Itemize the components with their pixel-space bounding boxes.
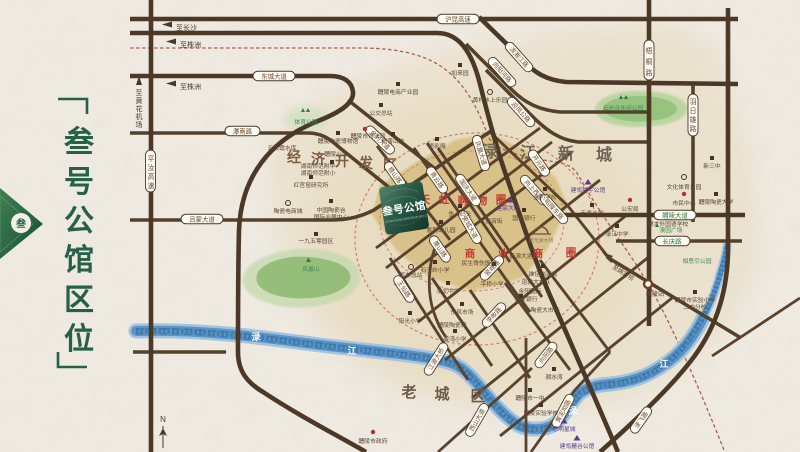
svg-text:市民中心: 市民中心	[672, 199, 695, 207]
svg-text:金利学校: 金利学校	[533, 193, 556, 201]
svg-text:醴陵陶瓷大学: 醴陵陶瓷大学	[699, 198, 734, 206]
svg-text:红官窑研究所: 红官窑研究所	[294, 181, 329, 189]
svg-text:建瓴虹宇公馆: 建瓴虹宇公馆	[571, 186, 606, 194]
svg-text:叁: 叁	[15, 217, 27, 230]
svg-text:湖南师范附小: 湖南师范附小	[301, 169, 336, 177]
svg-text:姜湾小学: 姜湾小学	[443, 335, 466, 343]
svg-text:号: 号	[64, 166, 94, 199]
svg-text:桐: 桐	[646, 57, 653, 66]
svg-text:新: 新	[558, 144, 574, 163]
svg-text:德才外国语学校: 德才外国语学校	[648, 220, 689, 228]
svg-text:江: 江	[659, 358, 668, 369]
svg-text:N: N	[160, 415, 166, 424]
svg-text:梧影庵: 梧影庵	[428, 142, 446, 150]
svg-text:金阳国际: 金阳国际	[518, 287, 541, 295]
svg-text:醴陵市司法局: 醴陵市司法局	[351, 132, 386, 140]
svg-text:吕蒙大道: 吕蒙大道	[189, 215, 215, 224]
svg-text:区: 区	[470, 388, 485, 405]
svg-text:馆: 馆	[64, 243, 94, 277]
svg-text:醴陵市实验小学: 醴陵市实验小学	[675, 296, 716, 304]
svg-text:农业银行: 农业银行	[514, 295, 537, 303]
svg-text:高: 高	[148, 172, 155, 181]
svg-text:发: 发	[358, 155, 374, 172]
svg-text:公交总站: 公交总站	[369, 109, 392, 117]
svg-text:至株洲: 至株洲	[180, 40, 201, 49]
svg-text:运输大车队: 运输大车队	[522, 278, 551, 286]
svg-text:场: 场	[136, 120, 143, 129]
svg-text:鱼人码头: 鱼人码头	[448, 210, 471, 218]
svg-text:圈: 圈	[496, 194, 507, 206]
svg-text:澳园广场: 澳园广场	[659, 226, 682, 234]
svg-text:湘水湾: 湘水湾	[545, 373, 563, 381]
svg-text:渌北中学: 渌北中学	[436, 287, 459, 295]
svg-text:建宸大院: 建宸大院	[496, 204, 519, 212]
svg-text:公安局: 公安局	[621, 205, 639, 213]
svg-text:加来园: 加来园	[451, 69, 469, 77]
svg-text:陶瓷电商城: 陶瓷电商城	[274, 207, 303, 215]
svg-text:平桥小学: 平桥小学	[480, 280, 503, 288]
svg-text:五彩霞水库: 五彩霞水库	[268, 144, 297, 152]
svg-text:石子岭小学: 石子岭小学	[421, 266, 450, 274]
svg-text:阳光小学: 阳光小学	[398, 317, 421, 325]
svg-text:雄: 雄	[690, 115, 697, 124]
svg-text:花: 花	[136, 104, 143, 113]
svg-text:民生骨伤医院: 民生骨伤医院	[462, 259, 497, 267]
svg-text:夜宵街: 夜宵街	[485, 217, 503, 225]
svg-text:湖南师范附中: 湖南师范附中	[301, 162, 336, 170]
svg-text:汝: 汝	[148, 163, 155, 172]
svg-text:瀑南路: 瀑南路	[233, 127, 253, 136]
svg-text:位: 位	[64, 322, 94, 356]
svg-text:思明星城: 思明星城	[552, 426, 575, 433]
svg-text:国际会展中心: 国际会展中心	[314, 213, 349, 221]
svg-text:新三中: 新三中	[703, 162, 721, 170]
svg-text:凤凰山: 凤凰山	[302, 265, 320, 273]
svg-text:城: 城	[434, 385, 449, 403]
svg-text:醴陵电商产业园: 醴陵电商产业园	[378, 88, 419, 96]
svg-text:黄村水上乐园: 黄村水上乐园	[473, 96, 508, 104]
svg-text:至长沙: 至长沙	[176, 23, 197, 32]
svg-text:檀香山庄: 檀香山庄	[381, 137, 404, 145]
svg-text:相思引公园: 相思引公园	[683, 257, 712, 265]
svg-text:中国陶瓷谷: 中国陶瓷谷	[317, 206, 346, 214]
svg-text:至株洲: 至株洲	[180, 82, 201, 91]
svg-text:醴陵市政府: 醴陵市政府	[359, 437, 388, 445]
svg-text:陶瓷大市场: 陶瓷大市场	[531, 306, 560, 314]
svg-text:东风市场: 东风市场	[450, 308, 473, 316]
svg-text:醴陵站: 醴陵站	[646, 290, 664, 298]
svg-text:江: 江	[347, 345, 356, 356]
svg-text:醴陵实验学校: 醴陵实验学校	[524, 409, 559, 417]
svg-text:路: 路	[690, 124, 697, 133]
svg-text:国泰银行: 国泰银行	[512, 214, 535, 222]
svg-text:虹: 虹	[439, 193, 450, 206]
svg-text:状元洲大桥: 状元洲大桥	[528, 237, 553, 244]
svg-text:一九五零园区: 一九五零园区	[299, 237, 334, 245]
svg-text:至: 至	[136, 89, 143, 97]
svg-text:文化体育公园: 文化体育公园	[667, 183, 702, 191]
svg-text:醴陵市一中: 醴陵市一中	[516, 394, 545, 402]
svg-text:东城大道: 东城大道	[261, 72, 287, 81]
svg-text:能源大酒店: 能源大酒店	[510, 252, 539, 260]
svg-text:无逸小学: 无逸小学	[580, 209, 603, 217]
svg-text:羽: 羽	[690, 98, 697, 106]
svg-text:老: 老	[400, 383, 416, 401]
svg-text:圈: 圈	[566, 247, 577, 259]
svg-text:醴陵陶瓷城: 醴陵陶瓷城	[438, 321, 467, 329]
svg-text:黄: 黄	[136, 96, 143, 105]
svg-text:机: 机	[136, 112, 143, 121]
svg-text:二中分校: 二中分校	[683, 303, 706, 311]
svg-text:紫荆幼儿园: 紫荆幼儿园	[427, 226, 456, 234]
svg-text:醴陵小学: 醴陵小学	[324, 150, 347, 158]
svg-text:渌江中学: 渌江中学	[605, 230, 628, 238]
svg-text:公: 公	[64, 205, 94, 238]
svg-text:渌: 渌	[251, 331, 261, 342]
svg-text:汽车总站: 汽车总站	[399, 271, 422, 279]
svg-text:醴陵大道: 醴陵大道	[662, 211, 688, 220]
svg-text:叁: 叁	[64, 125, 95, 159]
svg-text:平: 平	[148, 155, 155, 163]
svg-text:建瓴麓谷公馆: 建瓴麓谷公馆	[560, 442, 595, 450]
svg-text:长庆路: 长庆路	[662, 237, 682, 246]
svg-text:沪昆高速: 沪昆高速	[445, 15, 471, 24]
svg-text:体育公园: 体育公园	[294, 118, 317, 126]
svg-text:云岩寺休闲公园: 云岩寺休闲公园	[603, 104, 644, 112]
svg-text:区: 区	[64, 284, 94, 317]
svg-text:速: 速	[148, 182, 155, 190]
svg-text:城: 城	[596, 146, 612, 164]
svg-text:梧: 梧	[646, 46, 653, 55]
svg-text:日: 日	[690, 107, 697, 115]
svg-text:维佳纳酒店: 维佳纳酒店	[529, 270, 558, 278]
svg-text:商: 商	[465, 247, 476, 260]
svg-text:路: 路	[646, 68, 653, 77]
